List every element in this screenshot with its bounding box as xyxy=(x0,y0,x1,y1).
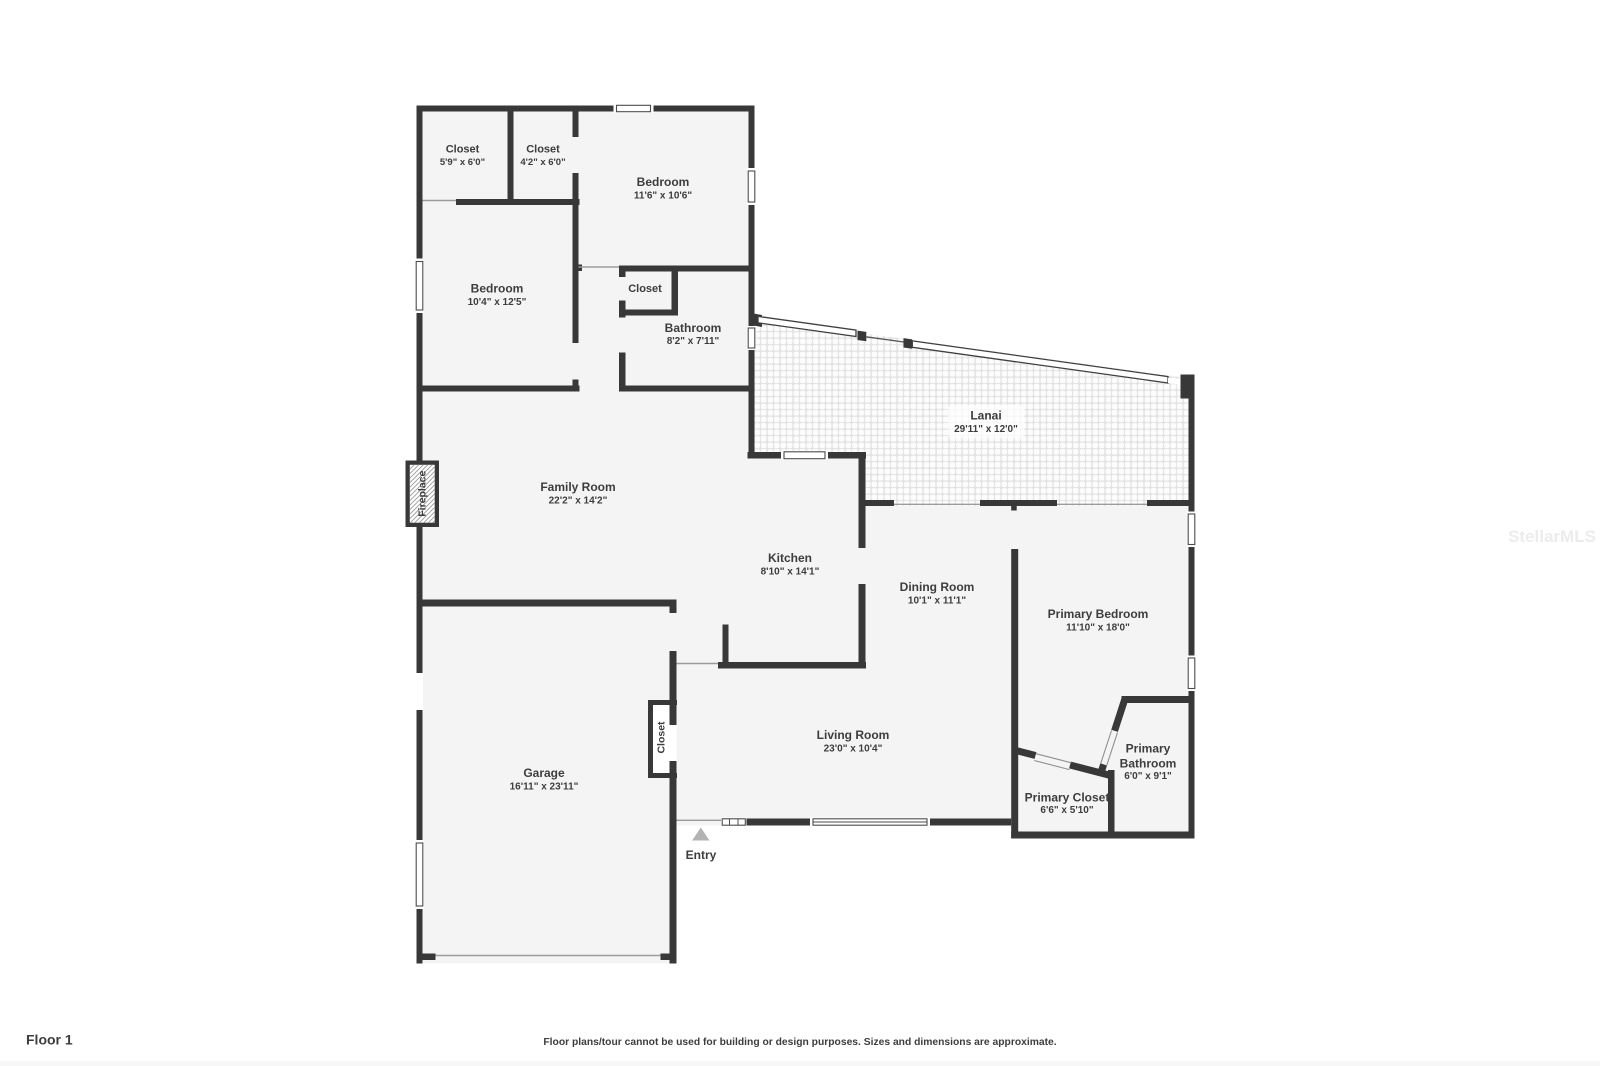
svg-text:Entry: Entry xyxy=(686,848,717,862)
svg-text:Bedroom: Bedroom xyxy=(637,175,690,189)
svg-text:Lanai: Lanai xyxy=(970,409,1001,423)
svg-text:11'6" x 10'6": 11'6" x 10'6" xyxy=(634,191,692,202)
svg-text:29'11" x 12'0": 29'11" x 12'0" xyxy=(954,424,1018,435)
svg-text:6'6" x 5'10": 6'6" x 5'10" xyxy=(1040,805,1093,816)
svg-text:5'9" x 6'0": 5'9" x 6'0" xyxy=(440,157,485,168)
svg-text:4'2" x 6'0": 4'2" x 6'0" xyxy=(520,157,565,168)
svg-text:22'2" x 14'2": 22'2" x 14'2" xyxy=(549,496,608,507)
svg-text:16'11" x 23'11": 16'11" x 23'11" xyxy=(510,782,579,793)
svg-text:11'10" x 18'0": 11'10" x 18'0" xyxy=(1066,623,1130,634)
svg-text:6'0" x 9'1": 6'0" x 9'1" xyxy=(1124,771,1172,782)
svg-text:23'0" x 10'4": 23'0" x 10'4" xyxy=(824,744,883,755)
svg-text:Fireplace: Fireplace xyxy=(416,470,428,516)
svg-text:Closet: Closet xyxy=(526,144,560,156)
svg-text:Bathroom: Bathroom xyxy=(1120,757,1177,771)
svg-text:8'2" x 7'11": 8'2" x 7'11" xyxy=(667,336,720,347)
svg-text:10'1" x 11'1": 10'1" x 11'1" xyxy=(908,596,966,607)
svg-text:Kitchen: Kitchen xyxy=(768,551,812,565)
svg-text:Bedroom: Bedroom xyxy=(471,282,524,296)
svg-text:Floor 1: Floor 1 xyxy=(26,1032,73,1048)
svg-text:Bathroom: Bathroom xyxy=(665,321,722,335)
svg-text:Closet: Closet xyxy=(628,283,662,295)
svg-text:Closet: Closet xyxy=(446,144,480,156)
svg-text:Closet: Closet xyxy=(656,721,668,754)
svg-text:Primary Closet: Primary Closet xyxy=(1025,791,1110,805)
svg-text:Primary: Primary xyxy=(1126,742,1171,756)
svg-text:Floor plans/tour cannot be use: Floor plans/tour cannot be used for buil… xyxy=(543,1037,1056,1048)
svg-text:Primary Bedroom: Primary Bedroom xyxy=(1048,607,1149,621)
svg-text:Dining Room: Dining Room xyxy=(900,580,975,594)
svg-text:Living Room: Living Room xyxy=(817,728,890,742)
svg-text:10'4" x 12'5": 10'4" x 12'5" xyxy=(468,297,527,308)
svg-text:Family Room: Family Room xyxy=(540,480,615,494)
svg-text:StellarMLS: StellarMLS xyxy=(1508,527,1596,546)
svg-text:Garage: Garage xyxy=(523,766,565,780)
svg-text:8'10" x 14'1": 8'10" x 14'1" xyxy=(761,567,820,578)
